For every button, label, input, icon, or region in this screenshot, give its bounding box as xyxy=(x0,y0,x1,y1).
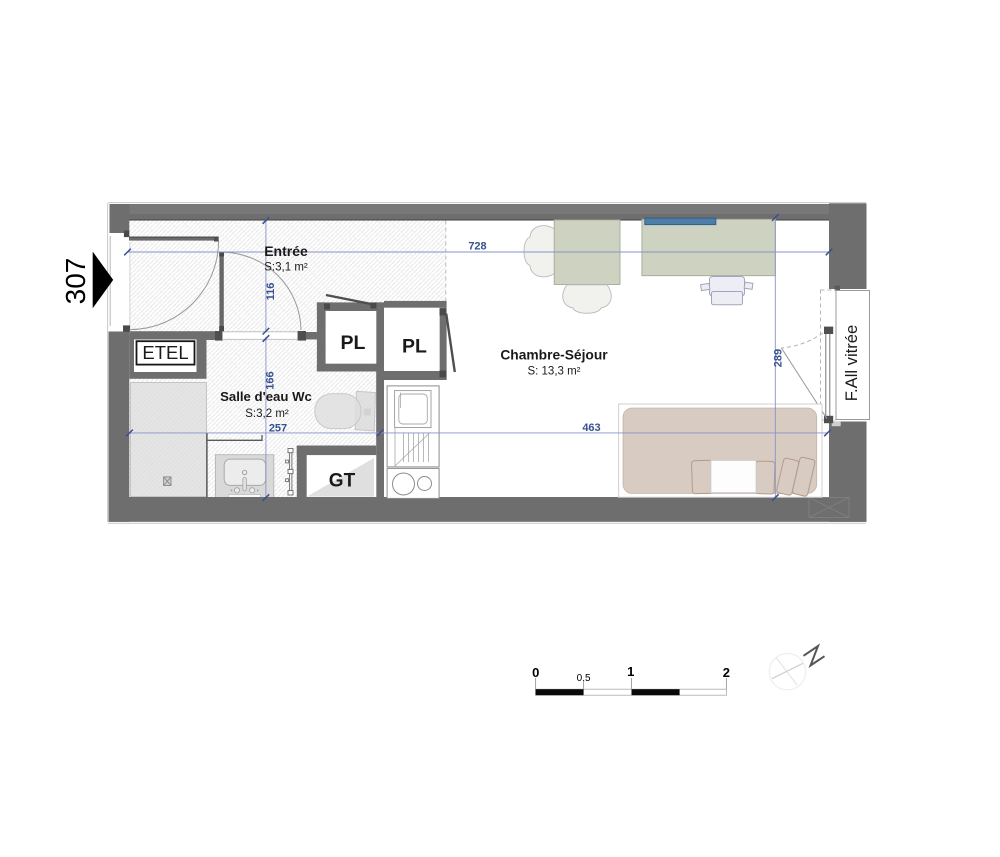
svg-text:116: 116 xyxy=(265,283,277,301)
svg-text:0: 0 xyxy=(532,665,539,680)
svg-text:S:3,1 m²: S:3,1 m² xyxy=(264,261,308,273)
svg-text:Salle d'eau Wc: Salle d'eau Wc xyxy=(220,389,312,404)
svg-text:Entrée: Entrée xyxy=(264,243,308,259)
svg-text:GT: GT xyxy=(329,471,356,492)
svg-text:S:3,2 m²: S:3,2 m² xyxy=(245,408,289,420)
svg-text:S: 13,3 m²: S: 13,3 m² xyxy=(527,365,580,377)
svg-text:Chambre-Séjour: Chambre-Séjour xyxy=(500,348,608,363)
svg-text:289: 289 xyxy=(772,349,784,367)
svg-text:166: 166 xyxy=(264,371,276,389)
svg-text:0.5: 0.5 xyxy=(577,673,591,684)
svg-text:1: 1 xyxy=(627,664,634,679)
svg-text:728: 728 xyxy=(468,241,486,253)
svg-text:463: 463 xyxy=(582,422,600,434)
svg-text:257: 257 xyxy=(269,423,287,435)
svg-text:2: 2 xyxy=(723,665,730,680)
svg-text:ETEL: ETEL xyxy=(142,342,188,363)
svg-text:PL: PL xyxy=(341,332,366,354)
svg-text:PL: PL xyxy=(402,336,427,358)
svg-text:F.All vitrée: F.All vitrée xyxy=(842,325,861,402)
svg-text:307: 307 xyxy=(60,258,91,305)
